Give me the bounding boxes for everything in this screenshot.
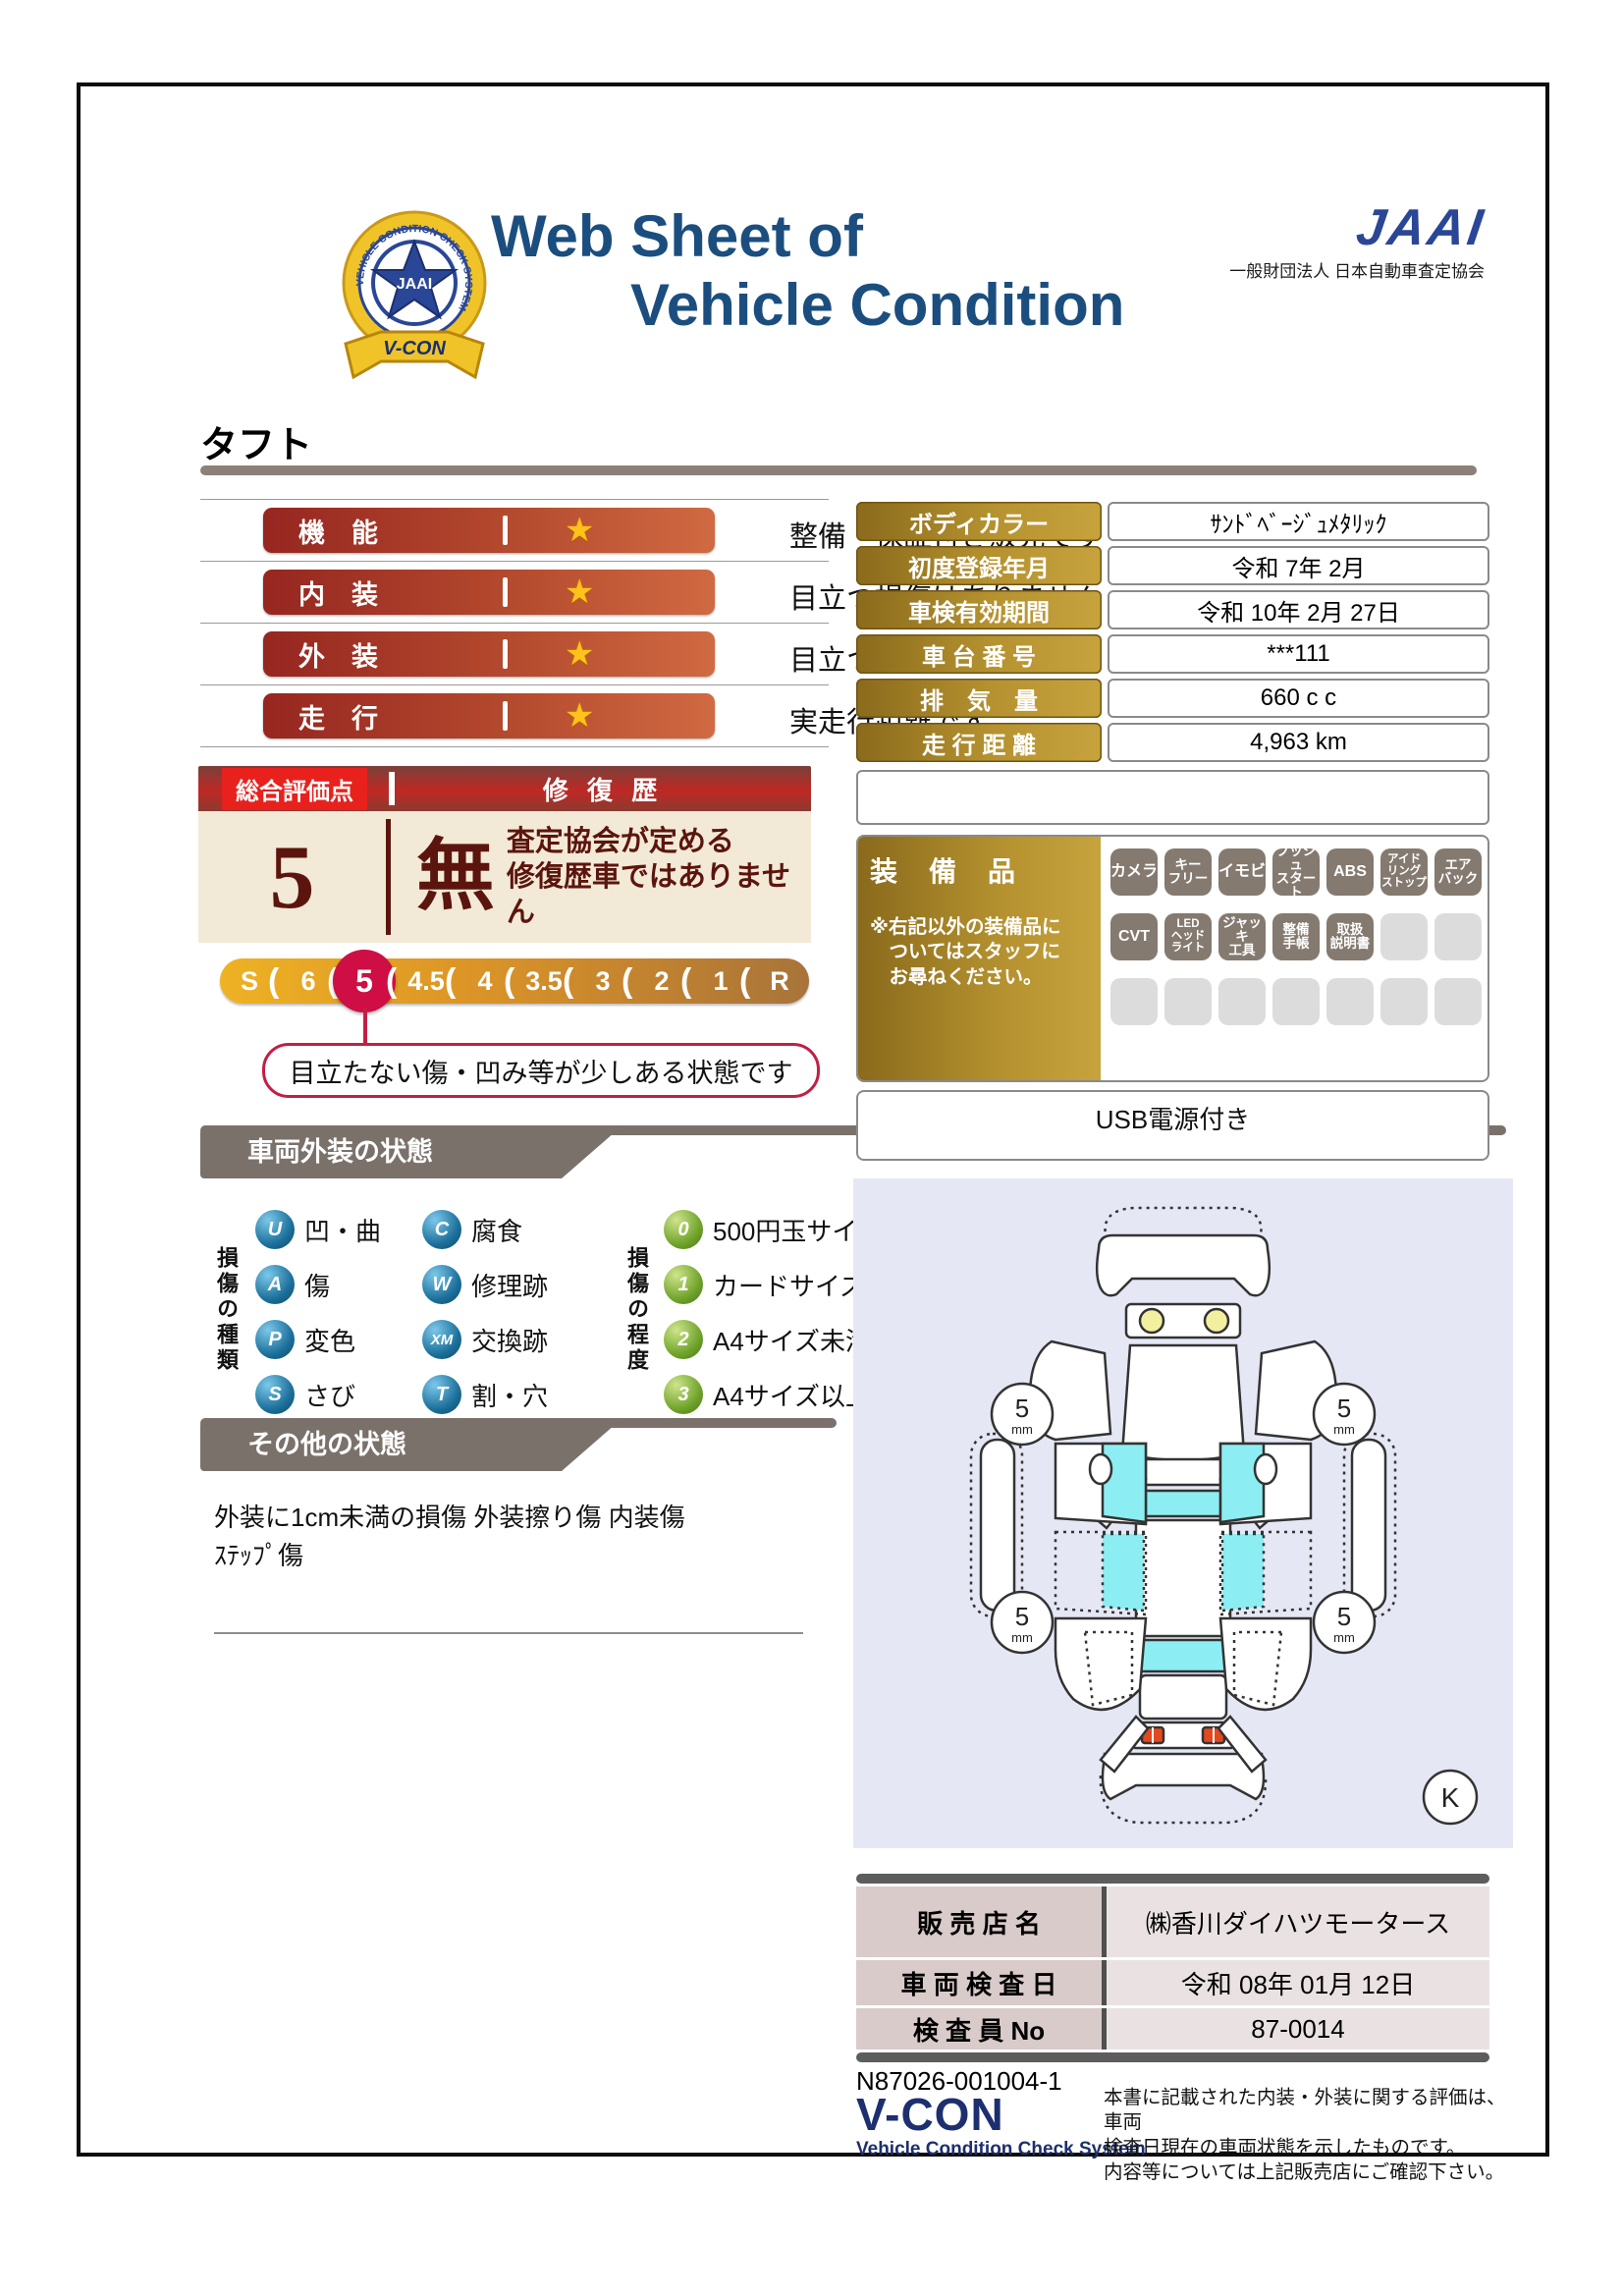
displacement-value: 660 c c bbox=[1108, 679, 1489, 718]
dealer-name-value: ㈱香川ダイハツモータース bbox=[1107, 1886, 1489, 1957]
type-xm-icon: XM bbox=[422, 1320, 461, 1359]
damage-type-label: 損傷の種類 bbox=[210, 1200, 242, 1420]
header-divider bbox=[200, 465, 1477, 475]
type-p-icon: P bbox=[255, 1320, 295, 1359]
score-panel-header: 総合評価点 修 復 歴 bbox=[198, 766, 811, 811]
dealer-name-label: 販 売 店 名 bbox=[856, 1886, 1102, 1957]
emblem-center-text: JAAI bbox=[397, 276, 432, 293]
degree-2-label: A4サイズ未満 bbox=[713, 1322, 871, 1358]
degree-2-icon: 2 bbox=[664, 1320, 703, 1359]
equipment-note-line3: お尋ねください。 bbox=[870, 965, 1089, 990]
badge-jack-tools: ジャッキ 工具 bbox=[1218, 913, 1266, 960]
type-w-icon: W bbox=[422, 1265, 461, 1304]
dealer-table-bottom-bar bbox=[856, 2052, 1489, 2062]
damage-type-w: W 修理跡 bbox=[422, 1257, 609, 1312]
score-callout: 目立たない傷・凹み等が少しある状態です bbox=[262, 1043, 820, 1098]
type-t-icon: T bbox=[422, 1375, 461, 1414]
table-row: 販 売 店 名 ㈱香川ダイハツモータース bbox=[856, 1886, 1489, 1957]
star-icon: ★ bbox=[565, 696, 594, 736]
rating-pill: 機 能 ★ bbox=[263, 508, 715, 553]
type-s-icon: S bbox=[255, 1375, 295, 1414]
badge-push-start: プッシュ スタート bbox=[1272, 848, 1320, 896]
vcon-logo-subtitle: Vehicle Condition Check System bbox=[856, 2139, 1146, 2160]
equipment-panel: 装 備 品 ※右記以外の装備品に ついてはスタッフに お尋ねください。 カメラ … bbox=[856, 835, 1489, 1082]
rear-bumper bbox=[1103, 1754, 1264, 1799]
inspection-validity-value: 令和 10年 2月 27日 bbox=[1108, 590, 1489, 629]
badge-empty bbox=[1434, 978, 1482, 1025]
right-rear-door-window bbox=[1222, 1534, 1264, 1611]
first-registration-value: 令和 7年 2月 bbox=[1108, 546, 1489, 585]
disclaimer-line2: 検査日現在の車両状態を示したものです。 bbox=[1104, 2136, 1506, 2160]
rating-label: 走 行 bbox=[263, 697, 495, 736]
callout-connector bbox=[363, 1008, 367, 1047]
emblem-ribbon-text: V-CON bbox=[383, 338, 446, 359]
overall-score-panel: 総合評価点 修 復 歴 5 無 査定協会が定める 修復歴車ではありません bbox=[198, 766, 811, 943]
inspector-no-value: 87-0014 bbox=[1107, 2008, 1489, 2050]
tire-depth-value: 5 bbox=[1337, 1394, 1351, 1423]
type-c-icon: C bbox=[422, 1210, 461, 1249]
rear-window-glass bbox=[1136, 1640, 1230, 1671]
type-xm-label: 交換跡 bbox=[471, 1322, 548, 1358]
damage-type-s: S さび bbox=[255, 1367, 422, 1422]
equipment-note-line2: ついてはスタッフに bbox=[870, 940, 1089, 964]
other-section-strip: その他の状態 bbox=[200, 1418, 837, 1428]
badge-empty bbox=[1164, 978, 1212, 1025]
damage-type-u: U 凹・曲 bbox=[255, 1202, 422, 1257]
dealer-table-top-bar bbox=[856, 1874, 1489, 1884]
rating-label: 内 装 bbox=[263, 574, 495, 612]
right-front-door-window bbox=[1220, 1444, 1264, 1522]
other-condition-underline bbox=[214, 1632, 803, 1634]
windshield-glass bbox=[1132, 1491, 1234, 1516]
repair-history-label: 修 復 歴 bbox=[395, 771, 811, 807]
page-title-line2: Vehicle Condition bbox=[630, 271, 1124, 339]
left-sill bbox=[981, 1440, 1014, 1611]
rating-pill: 外 装 ★ bbox=[263, 631, 715, 677]
badge-cvt: CVT bbox=[1110, 913, 1158, 960]
badge-empty bbox=[1434, 913, 1482, 960]
body-color-label: ボディカラー bbox=[856, 502, 1102, 541]
usb-note-box: USB電源付き bbox=[856, 1090, 1489, 1161]
pill-separator bbox=[503, 516, 508, 545]
equipment-title-panel: 装 備 品 ※右記以外の装備品に ついてはスタッフに お尋ねください。 bbox=[858, 837, 1101, 1080]
body-color-value: ｻﾝﾄﾞﾍﾞｰｼﾞｭﾒﾀﾘｯｸ bbox=[1108, 502, 1489, 541]
table-row: ボディカラー ｻﾝﾄﾞﾍﾞｰｼﾞｭﾒﾀﾘｯｸ bbox=[856, 502, 1489, 541]
degree-1-icon: 1 bbox=[664, 1265, 703, 1304]
badge-empty bbox=[1272, 978, 1320, 1025]
badge-idling-stop: アイド リング ストップ bbox=[1380, 848, 1428, 896]
other-condition-line2: ｽﾃｯﾌﾟ傷 bbox=[214, 1537, 803, 1575]
jaai-logo: JAAI bbox=[1353, 202, 1488, 253]
badge-empty bbox=[1326, 978, 1374, 1025]
type-s-label: さび bbox=[304, 1377, 355, 1413]
vehicle-name: タフト bbox=[200, 414, 312, 468]
degree-3-label: A4サイズ以上 bbox=[713, 1377, 871, 1413]
key-mark-text: K bbox=[1441, 1782, 1460, 1813]
damage-type-xm: XM 交換跡 bbox=[422, 1312, 609, 1367]
badge-abs: ABS bbox=[1326, 848, 1374, 896]
damage-type-p: P 変色 bbox=[255, 1312, 422, 1367]
rating-list: 機 能 ★ 整備・保証付き販売です 内 装 ★ 目立つ損傷はありません 外 装 … bbox=[200, 499, 829, 747]
repair-desc-line1: 査定協会が定める bbox=[507, 824, 811, 859]
table-row: 車 両 検 査 日 令和 08年 01月 12日 bbox=[856, 1960, 1489, 2005]
score-scale: S 6 5 4.5 4 3.5 3 2 1 R bbox=[220, 958, 809, 1004]
badge-service-book: 整備 手帳 bbox=[1272, 913, 1320, 960]
other-condition-line1: 外装に1cm未満の損傷 外装擦り傷 内装傷 bbox=[214, 1499, 803, 1537]
type-w-label: 修理跡 bbox=[471, 1267, 548, 1303]
repair-history-desc: 査定協会が定める 修復歴車ではありません bbox=[507, 824, 811, 931]
damage-type-c: C 腐食 bbox=[422, 1202, 609, 1257]
other-condition-text: 外装に1cm未満の損傷 外装擦り傷 内装傷 ｽﾃｯﾌﾟ傷 bbox=[214, 1499, 803, 1575]
tire-depth-unit: mm bbox=[1333, 1630, 1355, 1645]
type-a-label: 傷 bbox=[304, 1267, 330, 1303]
damage-degree-label: 損傷の程度 bbox=[621, 1200, 652, 1420]
inspection-date-label: 車 両 検 査 日 bbox=[856, 1960, 1102, 2005]
jaai-logo-block: JAAI 一般財団法人 日本自動車査定協会 bbox=[1092, 202, 1485, 282]
damage-type-t: T 割・穴 bbox=[422, 1367, 609, 1422]
type-c-label: 腐食 bbox=[471, 1212, 522, 1248]
tire-depth-unit: mm bbox=[1333, 1422, 1355, 1437]
tire-depth-value: 5 bbox=[1015, 1394, 1029, 1423]
overall-score-value: 5 bbox=[198, 832, 386, 922]
vcon-footer-logo: V-CON Vehicle Condition Check System bbox=[856, 2092, 1146, 2160]
type-t-label: 割・穴 bbox=[471, 1377, 548, 1413]
page-title-line1: Web Sheet of bbox=[491, 202, 863, 270]
type-u-label: 凹・曲 bbox=[304, 1212, 381, 1248]
overall-score-label: 総合評価点 bbox=[222, 768, 367, 810]
table-row: 車検有効期間 令和 10年 2月 27日 bbox=[856, 590, 1489, 629]
type-u-icon: U bbox=[255, 1210, 295, 1249]
condition-sheet: VEHICLE CONDITION CHECK SYSTEM JAAI V-CO… bbox=[77, 82, 1549, 2157]
star-icon: ★ bbox=[565, 634, 594, 674]
left-front-door-window bbox=[1103, 1444, 1146, 1522]
equipment-badge-grid: カメラ キー フリー イモビ プッシュ スタート ABS アイド リング ストッ… bbox=[1101, 837, 1488, 1080]
badge-camera: カメラ bbox=[1110, 848, 1158, 896]
chassis-number-label: 車 台 番 号 bbox=[856, 634, 1102, 674]
first-registration-label: 初度登録年月 bbox=[856, 546, 1102, 585]
damage-type-grid: U 凹・曲 C 腐食 A 傷 W 修理跡 P 変色 XM 交換跡 bbox=[255, 1202, 609, 1422]
rating-label: 機 能 bbox=[263, 512, 495, 550]
equipment-note-line1: ※右記以外の装備品に bbox=[870, 915, 1089, 940]
inspection-validity-label: 車検有効期間 bbox=[856, 590, 1102, 629]
displacement-label: 排 気 量 bbox=[856, 679, 1102, 718]
pill-separator bbox=[503, 639, 508, 669]
pill-separator bbox=[503, 701, 508, 731]
rating-pill: 走 行 ★ bbox=[263, 693, 715, 738]
chassis-number-value: ***111 bbox=[1108, 634, 1489, 674]
headlight-right-icon bbox=[1205, 1309, 1228, 1333]
vcon-emblem-logo: VEHICLE CONDITION CHECK SYSTEM JAAI V-CO… bbox=[324, 204, 505, 397]
other-section-header: その他の状態 bbox=[200, 1418, 622, 1471]
badge-immobilizer: イモビ bbox=[1218, 848, 1266, 896]
roof-panel bbox=[1136, 1520, 1230, 1636]
tire-depth-value: 5 bbox=[1015, 1602, 1029, 1631]
degree-3-icon: 3 bbox=[664, 1375, 703, 1414]
table-row: 検 査 員 No 87-0014 bbox=[856, 2008, 1489, 2050]
vehicle-info-table: ボディカラー ｻﾝﾄﾞﾍﾞｰｼﾞｭﾒﾀﾘｯｸ 初度登録年月 令和 7年 2月 車… bbox=[856, 502, 1489, 767]
degree-0-icon: 0 bbox=[664, 1210, 703, 1249]
score-panel-body: 5 無 査定協会が定める 修復歴車ではありません bbox=[198, 811, 811, 943]
mileage-label: 走 行 距 離 bbox=[856, 723, 1102, 762]
rating-row-interior: 内 装 ★ 目立つ損傷はありません bbox=[200, 561, 829, 623]
disclaimer-text: 本書に記載された内装・外装に関する評価は、車両 検査日現在の車両状態を示したもの… bbox=[1104, 2086, 1506, 2185]
badge-empty bbox=[1110, 978, 1158, 1025]
vcon-logo-text: V-CON bbox=[856, 2092, 1146, 2137]
badge-airbag: エア バック bbox=[1434, 848, 1482, 896]
headlight-left-icon bbox=[1140, 1309, 1163, 1333]
rating-row-function: 機 能 ★ 整備・保証付き販売です bbox=[200, 499, 829, 561]
badge-empty bbox=[1380, 978, 1428, 1025]
rating-label: 外 装 bbox=[263, 635, 495, 674]
table-row: 走 行 距 離 4,963 km bbox=[856, 723, 1489, 762]
damage-type-a: A 傷 bbox=[255, 1257, 422, 1312]
tire-depth-value: 5 bbox=[1337, 1602, 1351, 1631]
badge-owners-manual: 取扱 説明書 bbox=[1326, 913, 1374, 960]
disclaimer-line3: 内容等については上記販売店にご確認下さい。 bbox=[1104, 2160, 1506, 2185]
type-p-label: 変色 bbox=[304, 1322, 355, 1358]
pill-separator bbox=[503, 577, 508, 607]
badge-keyfree: キー フリー bbox=[1164, 848, 1212, 896]
exterior-section-header: 車両外装の状態 bbox=[200, 1125, 622, 1178]
vehicle-damage-diagram: 5 mm 5 mm 5 mm 5 mm K bbox=[853, 1178, 1513, 1848]
star-icon: ★ bbox=[565, 511, 594, 550]
body-separator bbox=[386, 819, 391, 935]
left-rear-door-window bbox=[1103, 1534, 1144, 1611]
notes-empty-box bbox=[856, 770, 1489, 825]
tire-depth-unit: mm bbox=[1011, 1422, 1033, 1437]
right-sill bbox=[1352, 1440, 1385, 1611]
equipment-note: ※右記以外の装備品に ついてはスタッフに お尋ねください。 bbox=[870, 915, 1089, 990]
disclaimer-line1: 本書に記載された内装・外装に関する評価は、車両 bbox=[1104, 2086, 1506, 2136]
badge-empty bbox=[1218, 978, 1266, 1025]
left-mirror bbox=[1090, 1454, 1111, 1484]
table-row: 車 台 番 号 ***111 bbox=[856, 634, 1489, 674]
equipment-title: 装 備 品 bbox=[870, 850, 1089, 890]
tailgate-panel bbox=[1140, 1675, 1226, 1719]
badge-led-headlight: LED ヘッド ライト bbox=[1164, 913, 1212, 960]
badge-empty bbox=[1380, 913, 1428, 960]
damage-legend: 損傷の種類 U 凹・曲 C 腐食 A 傷 W 修理跡 P 変色 bbox=[210, 1200, 819, 1422]
repair-desc-line2: 修復歴車ではありません bbox=[507, 859, 811, 931]
jaai-subtitle: 一般財団法人 日本自動車査定協会 bbox=[1092, 257, 1485, 282]
dealer-table: 販 売 店 名 ㈱香川ダイハツモータース 車 両 検 査 日 令和 08年 01… bbox=[856, 1874, 1489, 2062]
star-icon: ★ bbox=[565, 573, 594, 612]
mileage-value: 4,963 km bbox=[1108, 723, 1489, 762]
tire-depth-unit: mm bbox=[1011, 1630, 1033, 1645]
rating-pill: 内 装 ★ bbox=[263, 570, 715, 615]
inspection-date-value: 令和 08年 01月 12日 bbox=[1107, 1960, 1489, 2005]
right-mirror bbox=[1255, 1454, 1276, 1484]
table-row: 初度登録年月 令和 7年 2月 bbox=[856, 546, 1489, 585]
scale-seg-r: R bbox=[750, 958, 809, 1004]
rating-row-mileage: 走 行 ★ 実走行距離です bbox=[200, 684, 829, 747]
front-bumper bbox=[1097, 1235, 1270, 1295]
type-a-icon: A bbox=[255, 1265, 295, 1304]
inspector-no-label: 検 査 員 No bbox=[856, 2008, 1102, 2050]
repair-history-value: 無 bbox=[416, 838, 495, 916]
rating-row-exterior: 外 装 ★ 目立つ損傷はありません bbox=[200, 623, 829, 684]
table-row: 排 気 量 660 c c bbox=[856, 679, 1489, 718]
